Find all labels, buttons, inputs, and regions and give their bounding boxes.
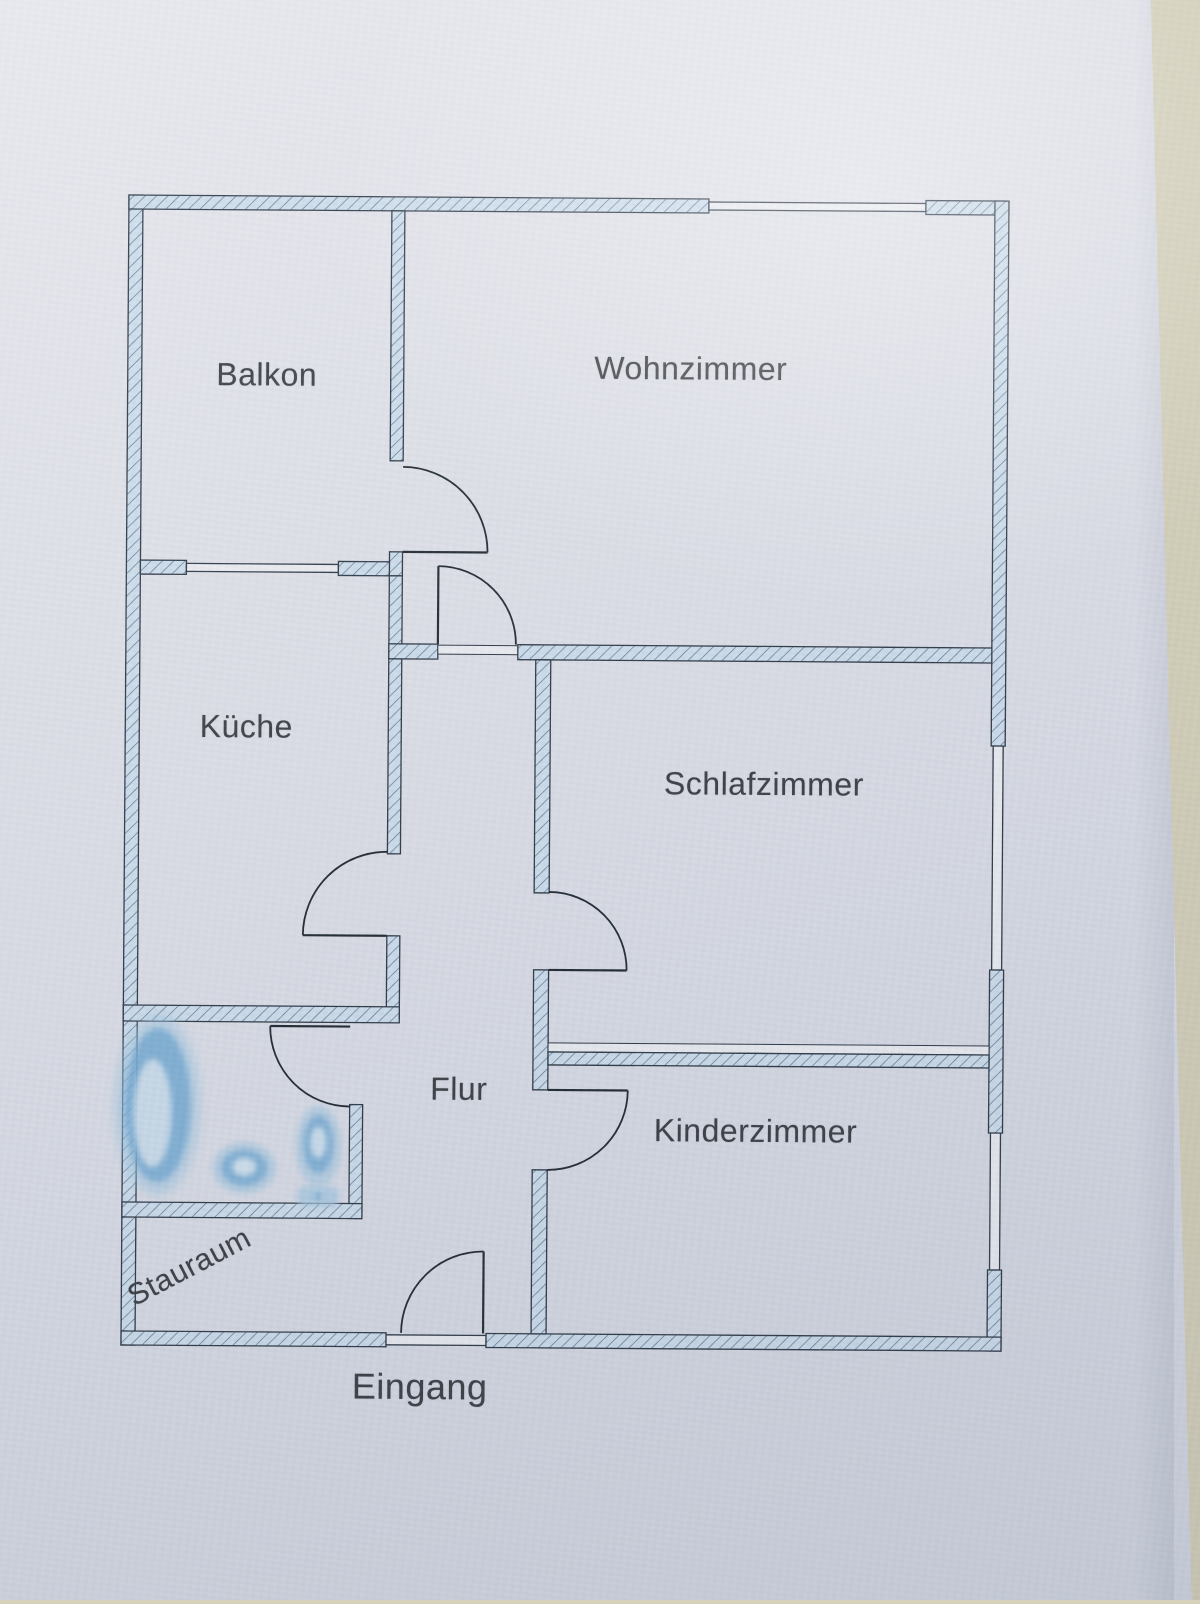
- wall-bad-right: [349, 1105, 363, 1219]
- door-wohnzimmer-leaf: [438, 566, 439, 644]
- wall-schlaf-kinder-hatch: [548, 1052, 989, 1068]
- room-label-flur: Flur: [430, 1071, 487, 1108]
- door-wohnzimmer-flur: [438, 566, 517, 645]
- room-label-kinderzimmer: Kinderzimmer: [654, 1112, 858, 1150]
- wall-flur-schlafzimmer-lower: [533, 970, 549, 1090]
- floor-plan: Balkon Wohnzimmer Küche Schlafzimmer Flu…: [0, 0, 1200, 1604]
- wall-balkon-right-stub: [389, 552, 402, 576]
- toilet-button: [314, 1193, 321, 1200]
- door-kueche: [303, 851, 388, 936]
- wall-outer-bottom-left: [121, 1331, 386, 1347]
- door-schlafzimmer-leaf: [549, 970, 627, 971]
- floor-plan-drawing: [0, 0, 1200, 1604]
- window-kinderzimmer-right: [990, 1133, 1001, 1270]
- wall-outer-bottom-right: [486, 1333, 1001, 1351]
- wall-balkon-right-upper: [390, 211, 405, 461]
- wall-kinderzimmer-left-lower: [531, 1170, 547, 1334]
- room-label-wohnzimmer: Wohnzimmer: [594, 350, 787, 388]
- door-balkon-swing: [403, 467, 489, 553]
- room-label-balkon: Balkon: [216, 356, 317, 394]
- door-bad-swing: [270, 1026, 351, 1107]
- room-label-kueche: Küche: [200, 708, 293, 746]
- paper-sheet: Balkon Wohnzimmer Küche Schlafzimmer Flu…: [0, 0, 1200, 1600]
- wall-wohnzimmer-bottom-right: [518, 645, 992, 663]
- window-schlafzimmer-right: [992, 746, 1004, 970]
- wall-kueche-right-upper: [387, 576, 402, 854]
- door-wohnzimmer-swing: [438, 566, 517, 645]
- washbasin: [212, 1142, 276, 1200]
- washbasin-bowl: [232, 1158, 256, 1176]
- window-balkon-kueche: [186, 563, 338, 572]
- door-kueche-leaf: [303, 935, 387, 936]
- door-schlafzimmer-swing: [549, 892, 628, 971]
- photo-of-floor-plan: { "document": { "kind": "apartment floor…: [0, 0, 1200, 1600]
- door-eingang-swing: [401, 1251, 484, 1334]
- door-bad: [270, 1026, 351, 1107]
- door-balkon: [403, 467, 489, 553]
- wall-flur-schlafzimmer-upper: [534, 660, 551, 893]
- window-wohnzimmer-top: [709, 202, 926, 212]
- door-kinderzimmer-swing: [547, 1090, 628, 1171]
- wall-outer-right-1: [991, 201, 1009, 746]
- wall-balkon-bottom-left: [140, 560, 186, 574]
- bathroom-fixtures: [114, 1015, 342, 1207]
- room-label-schlafzimmer: Schlafzimmer: [664, 765, 864, 803]
- wall-wohnzimmer-bottom-left: [389, 644, 438, 659]
- entrance-threshold: [386, 1335, 486, 1346]
- door-kinderzimmer-leaf: [548, 1090, 628, 1091]
- wall-balkon-bottom-right: [338, 561, 389, 575]
- door-balkon-leaf: [403, 552, 488, 553]
- toilet: [295, 1105, 342, 1206]
- door-kueche-swing: [303, 851, 388, 936]
- entrance-label: Eingang: [352, 1366, 488, 1409]
- door-kinderzimmer: [547, 1090, 628, 1171]
- door-schlafzimmer: [549, 892, 628, 971]
- wall-outer-top-left: [129, 195, 709, 213]
- door-eingang: [401, 1251, 484, 1334]
- door-lintel-wohnzimmer: [438, 645, 518, 655]
- door-bad-leaf: [270, 1026, 350, 1027]
- wall-outer-right-2: [988, 970, 1003, 1133]
- door-eingang-leaf: [483, 1251, 484, 1333]
